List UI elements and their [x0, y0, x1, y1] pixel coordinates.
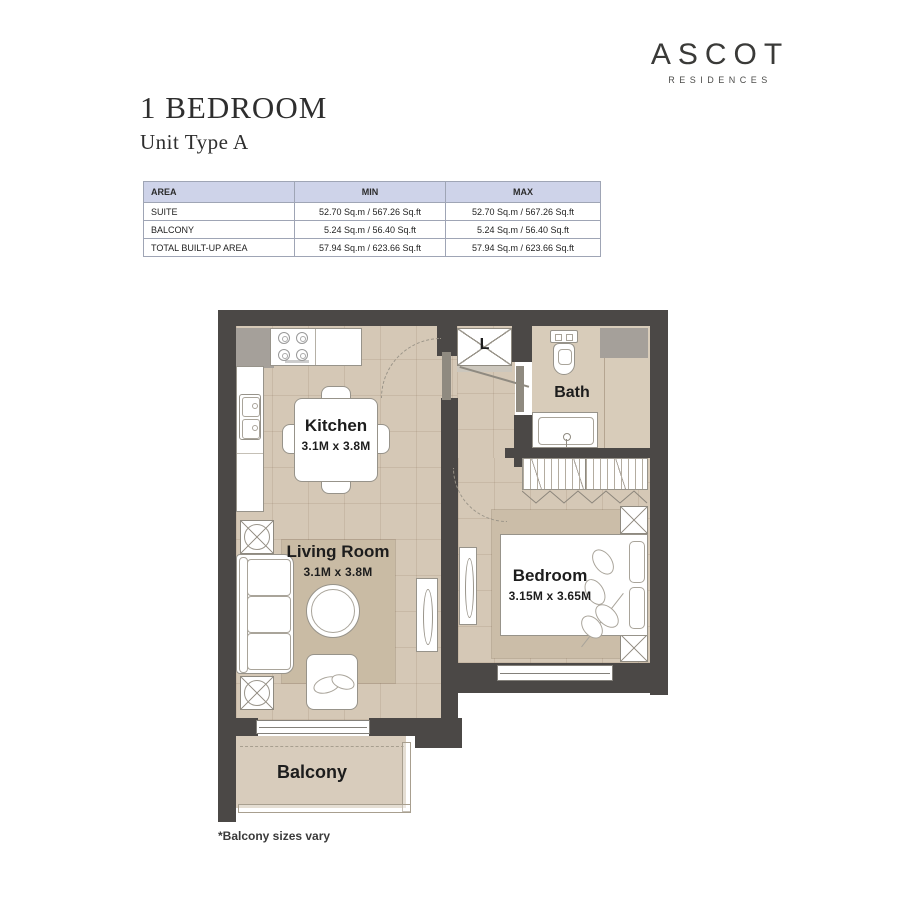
bedroom-dresser — [459, 547, 477, 625]
cell-suite-max: 52.70 Sq.m / 567.26 Sq.ft — [446, 203, 601, 221]
kitchen-dimensions: 3.1M x 3.8M — [276, 440, 396, 454]
bath-label: Bath — [532, 384, 612, 402]
floorplan-page: ASCOT RESIDENCES 1 BEDROOM Unit Type A A… — [0, 0, 900, 900]
cell-suite: SUITE — [144, 203, 295, 221]
col-max: MAX — [446, 182, 601, 203]
tv-console — [416, 578, 438, 652]
cell-total-max: 57.94 Sq.m / 623.66 Sq.ft — [446, 239, 601, 257]
cell-suite-min: 52.70 Sq.m / 567.26 Sq.ft — [295, 203, 446, 221]
bedroom-name: Bedroom — [480, 566, 620, 586]
balcony-dashed-line — [240, 746, 404, 747]
bedroom-window — [497, 665, 613, 681]
bathtub-icon — [532, 412, 598, 448]
bedroom-dimensions: 3.15M x 3.65M — [480, 590, 620, 604]
cell-total-min: 57.94 Sq.m / 623.66 Sq.ft — [295, 239, 446, 257]
wall-balcony-corner — [415, 718, 462, 748]
table-row: TOTAL BUILT-UP AREA 57.94 Sq.m / 623.66 … — [144, 239, 601, 257]
toilet-bowl-icon — [553, 343, 575, 375]
living-room-name: Living Room — [268, 542, 408, 562]
kitchen-name: Kitchen — [276, 416, 396, 436]
brand-tagline: RESIDENCES — [650, 75, 790, 85]
kitchen-sink-icon — [239, 394, 261, 440]
stove-burner-icon — [278, 349, 290, 361]
wall-closet-right — [512, 310, 532, 362]
wall-living-bottom-left — [218, 718, 258, 736]
stove-burner-icon — [296, 332, 308, 344]
col-area: AREA — [144, 182, 295, 203]
area-table: AREA MIN MAX SUITE 52.70 Sq.m / 567.26 S… — [143, 181, 601, 257]
balcony-label: Balcony — [250, 762, 374, 783]
page-subtitle: Unit Type A — [140, 130, 249, 155]
kitchen-door-icon — [442, 352, 451, 400]
brand-logo: ASCOT RESIDENCES — [650, 38, 790, 85]
wardrobe-doors-icon — [522, 490, 648, 505]
kitchen-column — [236, 328, 274, 368]
wall-left — [218, 310, 236, 822]
cell-balcony-max: 5.24 Sq.m / 56.40 Sq.ft — [446, 221, 601, 239]
bedroom-label: Bedroom 3.15M x 3.65M — [480, 566, 620, 603]
balcony-sliding-door — [256, 720, 370, 734]
cell-balcony: BALCONY — [144, 221, 295, 239]
nightstand — [620, 634, 648, 662]
balcony-rail-right — [402, 742, 411, 812]
table-row: SUITE 52.70 Sq.m / 567.26 Sq.ft 52.70 Sq… — [144, 203, 601, 221]
stove-burner-icon — [296, 349, 308, 361]
stove-burner-icon — [278, 332, 290, 344]
table-row: BALCONY 5.24 Sq.m / 56.40 Sq.ft 5.24 Sq.… — [144, 221, 601, 239]
coffee-table — [306, 584, 360, 638]
shower-divider — [604, 358, 605, 448]
page-title: 1 BEDROOM — [140, 90, 327, 126]
col-min: MIN — [295, 182, 446, 203]
wall-bath-bottom — [505, 448, 668, 458]
bath-door-icon — [516, 366, 524, 412]
armchair — [306, 654, 358, 710]
bath-duct — [600, 328, 648, 358]
brand-name: ASCOT — [650, 38, 790, 72]
cell-total: TOTAL BUILT-UP AREA — [144, 239, 295, 257]
wall-right — [650, 310, 668, 695]
cell-balcony-min: 5.24 Sq.m / 56.40 Sq.ft — [295, 221, 446, 239]
table-header-row: AREA MIN MAX — [144, 182, 601, 203]
wardrobe — [522, 458, 648, 490]
nightstand — [620, 506, 648, 534]
kitchen-label: Kitchen 3.1M x 3.8M — [276, 416, 396, 453]
footnote: *Balcony sizes vary — [218, 829, 330, 843]
balcony-rail-bottom — [238, 804, 411, 813]
laundry-label: L — [457, 336, 512, 354]
toilet-icon — [550, 330, 578, 343]
living-room-label: Living Room 3.1M x 3.8M — [268, 542, 408, 579]
living-room-dimensions: 3.1M x 3.8M — [268, 566, 408, 580]
side-table — [240, 676, 274, 710]
wall-living-bottom-right — [369, 718, 419, 736]
